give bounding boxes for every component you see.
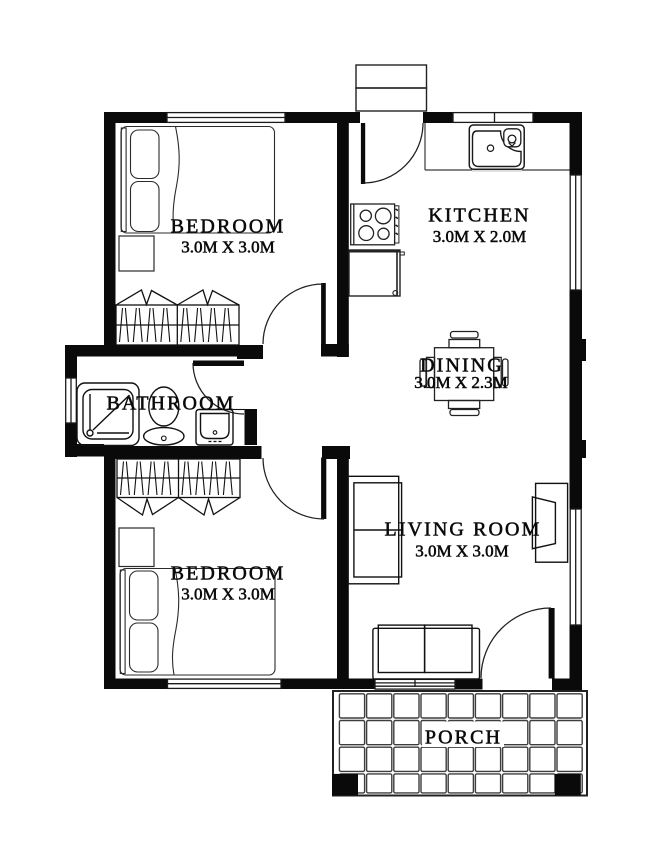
svg-text:3.0M X 3.0M: 3.0M X 3.0M [181, 238, 275, 257]
svg-text:KITCHEN: KITCHEN [428, 205, 530, 227]
svg-text:3.0M X 3.0M: 3.0M X 3.0M [415, 542, 509, 561]
svg-text:BEDROOM: BEDROOM [171, 216, 286, 238]
svg-text:3.0M X 2.3M: 3.0M X 2.3M [414, 373, 508, 392]
svg-text:3.0M X 2.0M: 3.0M X 2.0M [433, 227, 527, 246]
svg-text:BEDROOM: BEDROOM [171, 563, 286, 585]
svg-text:LIVING ROOM: LIVING ROOM [385, 519, 542, 541]
svg-text:PORCH: PORCH [425, 727, 502, 749]
svg-text:3.0M X 3.0M: 3.0M X 3.0M [181, 585, 275, 604]
svg-text:BATHROOM: BATHROOM [106, 393, 235, 415]
